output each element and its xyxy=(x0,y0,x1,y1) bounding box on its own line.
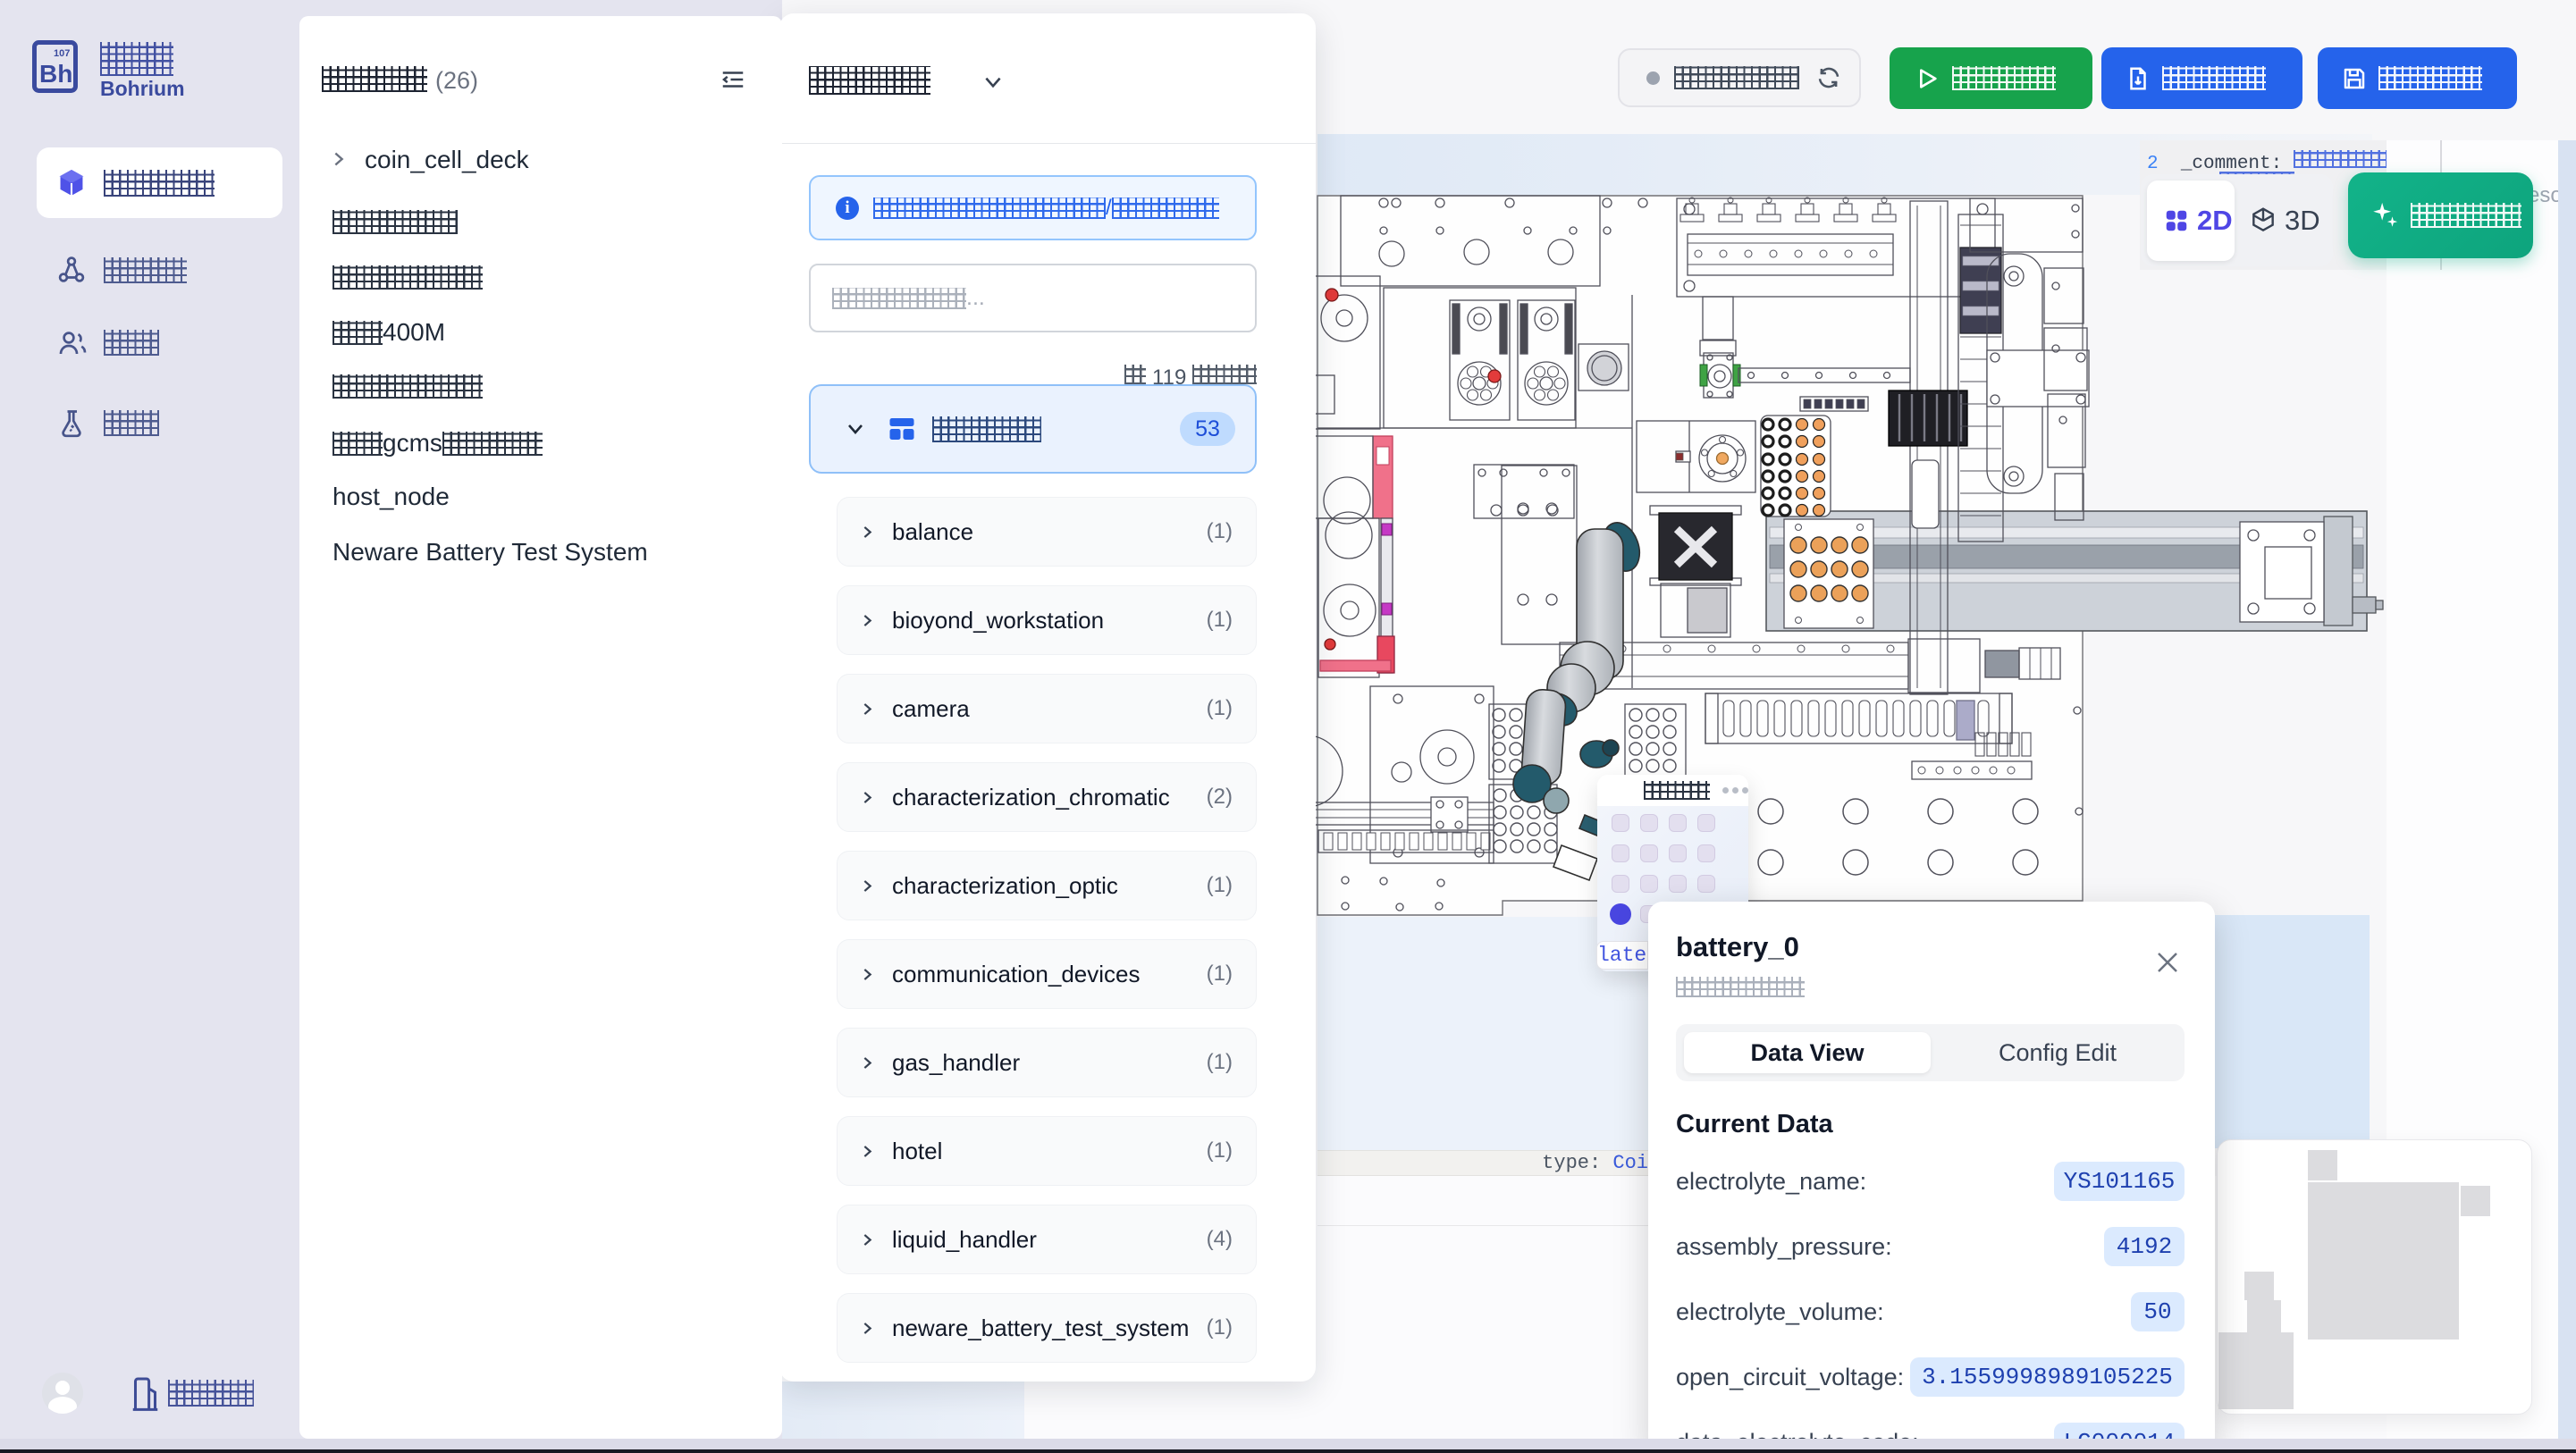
svg-text:107: 107 xyxy=(54,48,70,59)
svg-text:Bh: Bh xyxy=(39,60,72,88)
